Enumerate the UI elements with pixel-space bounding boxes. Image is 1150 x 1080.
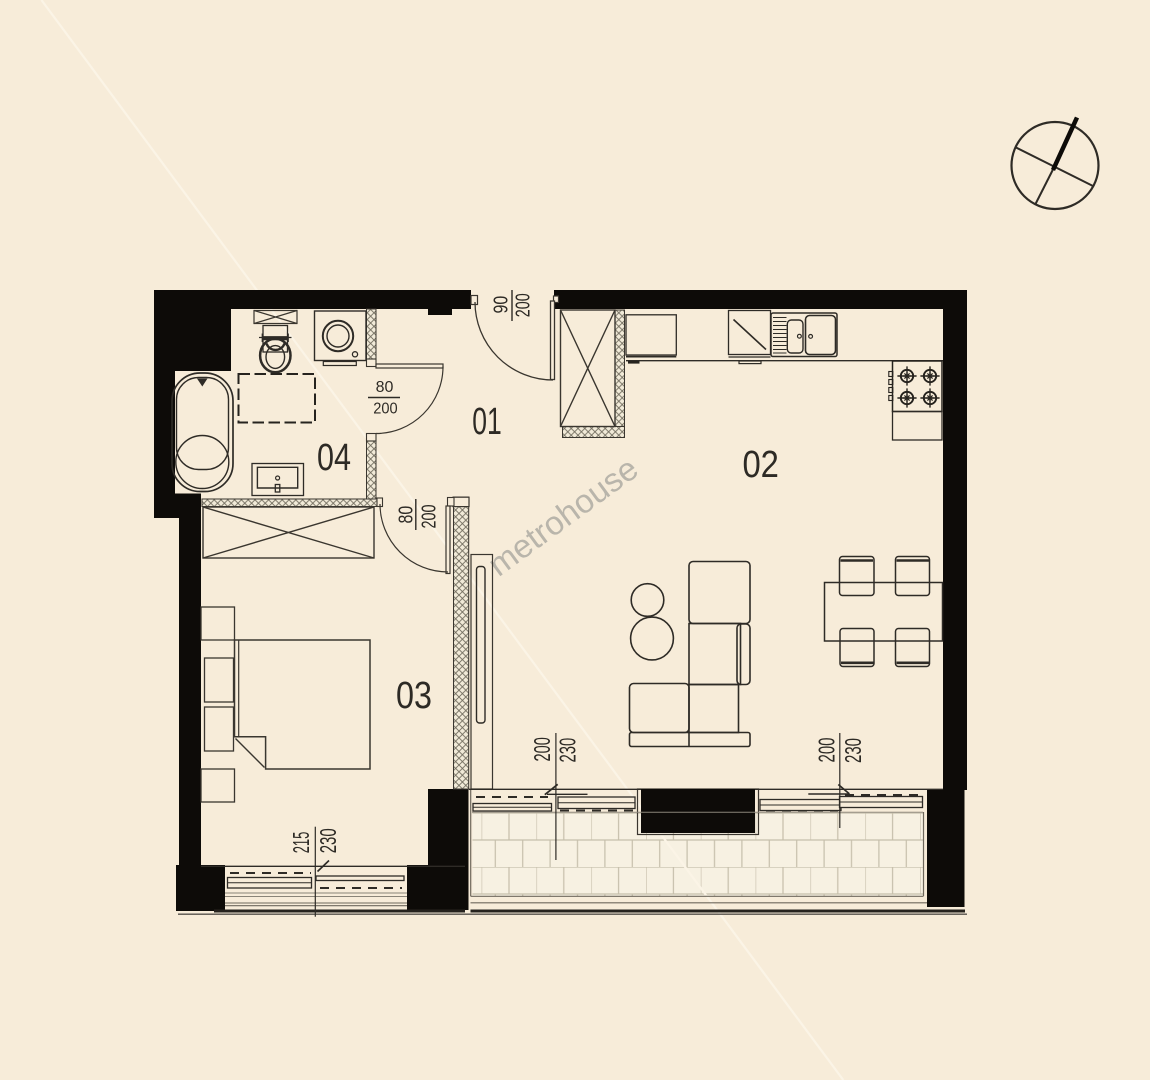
svg-text:90: 90 xyxy=(491,296,513,314)
svg-text:03: 03 xyxy=(396,675,432,717)
svg-text:230: 230 xyxy=(555,738,581,763)
svg-text:215: 215 xyxy=(288,832,314,854)
svg-text:01: 01 xyxy=(472,401,502,443)
svg-text:200: 200 xyxy=(418,505,440,529)
svg-text:200: 200 xyxy=(529,737,555,761)
svg-text:230: 230 xyxy=(315,828,341,853)
svg-text:230: 230 xyxy=(840,738,866,763)
svg-text:80: 80 xyxy=(396,506,418,524)
svg-text:80: 80 xyxy=(376,379,394,396)
svg-text:200: 200 xyxy=(513,293,535,317)
svg-text:200: 200 xyxy=(813,738,839,763)
svg-text:02: 02 xyxy=(742,444,779,486)
svg-text:04: 04 xyxy=(317,437,351,479)
svg-text:200: 200 xyxy=(373,401,398,418)
